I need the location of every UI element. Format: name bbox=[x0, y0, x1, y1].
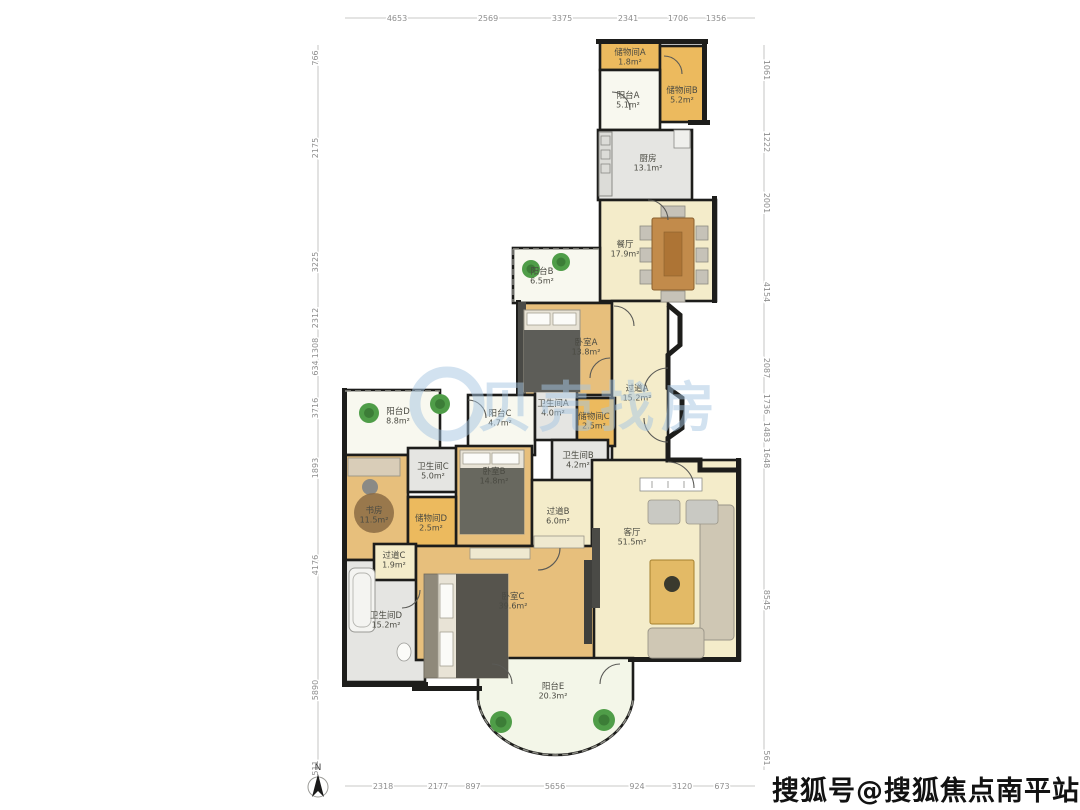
watermark-center-text: 贝壳找房 bbox=[478, 376, 722, 439]
dimension-label: 1893 bbox=[311, 458, 320, 478]
dimension-label: 4653 bbox=[387, 14, 407, 23]
room-label-balcony-b: 阳台B6.5m² bbox=[530, 266, 554, 286]
room-label-bedroom-c: 卧室C39.6m² bbox=[499, 591, 528, 611]
room-storage-b bbox=[660, 46, 705, 122]
dimension-label: 2341 bbox=[618, 14, 638, 23]
dimension-label: 1308 bbox=[311, 338, 320, 358]
dimension-label: 634 bbox=[311, 360, 320, 375]
dimension-label: 2175 bbox=[311, 138, 320, 158]
dimension-label: 2312 bbox=[311, 308, 320, 328]
room-label-bedroom-a: 卧室A13.8m² bbox=[572, 337, 601, 357]
dimension-label: 5890 bbox=[311, 680, 320, 700]
dimension-label: 5656 bbox=[545, 782, 565, 791]
floorplan-drawing: 储物间A1.8m²储物间B5.2m²阳台A5.1m²厨房13.1m²餐厅17.9… bbox=[0, 0, 1080, 810]
dimension-label: 1706 bbox=[668, 14, 688, 23]
bed-b-icon bbox=[460, 450, 524, 534]
compass-n-label: N bbox=[315, 763, 322, 773]
dimension-label: 4154 bbox=[762, 282, 771, 302]
watermark-center: 贝壳找房 bbox=[415, 372, 722, 439]
dimension-label: 2318 bbox=[373, 782, 393, 791]
room-label-bedroom-b: 卧室B14.8m² bbox=[480, 466, 509, 486]
dimension-label: 897 bbox=[465, 782, 480, 791]
dimension-label: 3120 bbox=[672, 782, 692, 791]
dimension-label: 2087 bbox=[762, 358, 771, 378]
room-label-bath-b: 卫生间B4.2m² bbox=[562, 450, 594, 470]
room-label-balcony-d: 阳台D8.8m² bbox=[386, 406, 410, 426]
dimension-label: 1736 bbox=[762, 394, 771, 414]
dimension-label: 561 bbox=[762, 750, 771, 765]
dimension-label: 1483 bbox=[762, 422, 771, 442]
dimension-label: 3716 bbox=[311, 398, 320, 418]
room-label-storage-b: 储物间B5.2m² bbox=[666, 85, 698, 105]
room-label-hall-c: 过道C1.9m² bbox=[382, 550, 406, 570]
dimension-label: 1061 bbox=[762, 60, 771, 80]
dimension-label: 2569 bbox=[478, 14, 498, 23]
dimension-label: 766 bbox=[311, 50, 320, 65]
room-label-bath-c: 卫生间C5.0m² bbox=[417, 461, 449, 481]
dimension-label: 1356 bbox=[706, 14, 726, 23]
room-label-balcony-a: 阳台A5.1m² bbox=[616, 90, 640, 110]
watermark-bottom-right: 搜狐号@搜狐焦点南平站 bbox=[772, 769, 1080, 808]
dimension-label: 2001 bbox=[762, 193, 771, 213]
room-label-hall-b: 过道B6.0m² bbox=[546, 506, 570, 526]
dimension-label: 4176 bbox=[311, 555, 320, 575]
dimension-label: 924 bbox=[629, 782, 644, 791]
dimension-label: 3375 bbox=[552, 14, 572, 23]
dimension-label: 3225 bbox=[311, 252, 320, 272]
dimension-label: 2177 bbox=[428, 782, 448, 791]
room-label-bath-d: 卫生间D15.2m² bbox=[370, 610, 403, 630]
floorplan-canvas: 储物间A1.8m²储物间B5.2m²阳台A5.1m²厨房13.1m²餐厅17.9… bbox=[0, 0, 1080, 810]
room-label-storage-a: 储物间A1.8m² bbox=[614, 47, 646, 67]
dimension-label: 1222 bbox=[762, 132, 771, 152]
dimension-label: 1648 bbox=[762, 448, 771, 468]
room-label-balcony-e: 阳台E20.3m² bbox=[539, 681, 568, 701]
dimension-label: 8545 bbox=[762, 590, 771, 610]
dimension-label: 673 bbox=[714, 782, 729, 791]
room-label-storage-d: 储物间D2.5m² bbox=[415, 513, 448, 533]
